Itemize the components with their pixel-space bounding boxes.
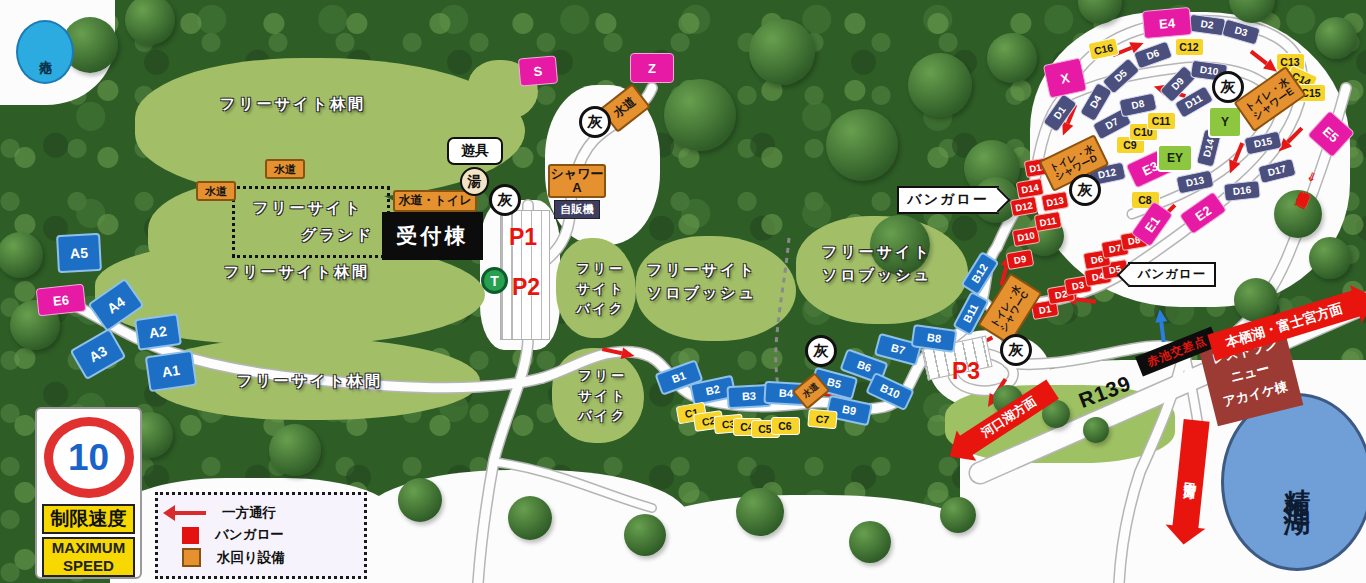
area-label: フリーサイトバイク [577, 259, 626, 319]
legend-row-water: 水回り設備 [174, 548, 348, 567]
site-M-E4: E4 [1142, 7, 1192, 39]
area-label: フリーサイトソロブッシュ [647, 258, 757, 305]
bungalow-pointer-right: バンガロー [897, 186, 999, 214]
ash-disposal-point: 灰 [489, 184, 521, 216]
ash-disposal-point: 灰 [805, 335, 837, 367]
legend-label-bungalow: バンガロー [215, 526, 284, 544]
speed-limit-en-line2: SPEED [63, 557, 114, 575]
tree [624, 514, 666, 556]
legend-label-water: 水回り設備 [217, 549, 285, 567]
area-label: フリーサイトバイク [579, 366, 628, 426]
legend-label-one-way: 一方通行 [222, 504, 276, 522]
footpath [776, 238, 789, 396]
ash-disposal-point: 灰 [1000, 334, 1032, 366]
tree [987, 33, 1037, 83]
area-label: フリーサイト林間 [237, 369, 383, 392]
legend-row-one-way: 一方通行 [174, 504, 348, 522]
tree [398, 478, 442, 522]
reception-building: 受付棟 [382, 212, 483, 260]
site-A-A5: A5 [56, 233, 102, 273]
tree [664, 79, 736, 151]
site-M-Z: Z [630, 53, 674, 83]
parking-p3-label: P3 [952, 358, 980, 385]
speed-limit-en-line1: MAXIMUM [52, 539, 125, 557]
area-label: フリーサイトソロブッシュ [822, 240, 932, 287]
speed-limit-jp-plate: 制限速度 [42, 504, 135, 534]
vending-machine: 自販機 [554, 200, 600, 219]
free-site-ground-area: フリーサイト グランド [232, 186, 390, 258]
site-G-Y: Y [1208, 106, 1242, 138]
water-square-icon [182, 548, 201, 567]
water-facility: 水道 [196, 181, 236, 201]
ash-disposal-point: 灰 [1069, 174, 1101, 206]
tree [1309, 237, 1351, 279]
site-M-S: S [518, 55, 558, 86]
tree [940, 497, 976, 533]
speed-limit-circle: 10 [44, 417, 134, 498]
site-A-A2: A2 [134, 313, 182, 351]
direction-arrow-blue [1154, 308, 1170, 342]
speed-limit-sign: 10 制限速度 MAXIMUM SPEED [35, 407, 142, 579]
speed-limit-en-plate: MAXIMUM SPEED [42, 537, 135, 577]
parking-p2-label: P2 [512, 274, 540, 301]
speed-limit-number: 10 [68, 437, 109, 479]
bungalow-pointer-left: バンガロー [1128, 262, 1216, 287]
water-facility: 水道・トイレ [393, 190, 477, 212]
tree [736, 488, 784, 536]
tree [826, 109, 898, 181]
map-legend: 一方通行 バンガロー 水回り設備 [155, 492, 367, 579]
tree [908, 53, 972, 117]
legend-row-bungalow: バンガロー [174, 526, 348, 544]
tree [749, 19, 815, 85]
site-G-EY: EY [1157, 144, 1193, 172]
t-marker-pin: T [481, 267, 508, 294]
playground-label: 遊具 [447, 137, 503, 165]
one-way-arrow-icon [174, 511, 206, 515]
site-C-C6: C6 [771, 417, 800, 435]
tree [1083, 417, 1109, 443]
campground-map: A1A2A3A4A5E6B1B2B3B4B5B6B7B8B9B10B11B12C… [0, 0, 1366, 583]
site-C-C7: C7 [807, 409, 837, 429]
area-label: フリーサイト林間 [224, 260, 370, 283]
site-M-E6: E6 [36, 284, 87, 317]
tree [1315, 17, 1357, 59]
site-A-A1: A1 [145, 350, 198, 392]
free-site-ground-label-2: グランド [301, 226, 374, 245]
ash-disposal-point: 灰 [579, 106, 611, 138]
site-N-D16: D16 [1223, 180, 1261, 202]
ash-disposal-point: 灰 [1212, 71, 1244, 103]
parking-p1-label: P1 [509, 224, 537, 251]
tree [849, 521, 891, 563]
bungalow-square-icon [182, 527, 199, 544]
tree [508, 496, 552, 540]
free-site-ground-label-1: フリーサイト [253, 199, 363, 218]
site-C-C11: C11 [1147, 112, 1176, 130]
site-C-C12: C12 [1175, 38, 1204, 56]
water-facility: 水道 [265, 159, 305, 179]
hot-water-point: 湯 [460, 167, 489, 196]
tree [269, 424, 321, 476]
area-label: フリーサイト林間 [220, 92, 366, 115]
akaike-pond: 赤池 [16, 20, 74, 84]
water-facility: シャワーA [548, 164, 606, 198]
